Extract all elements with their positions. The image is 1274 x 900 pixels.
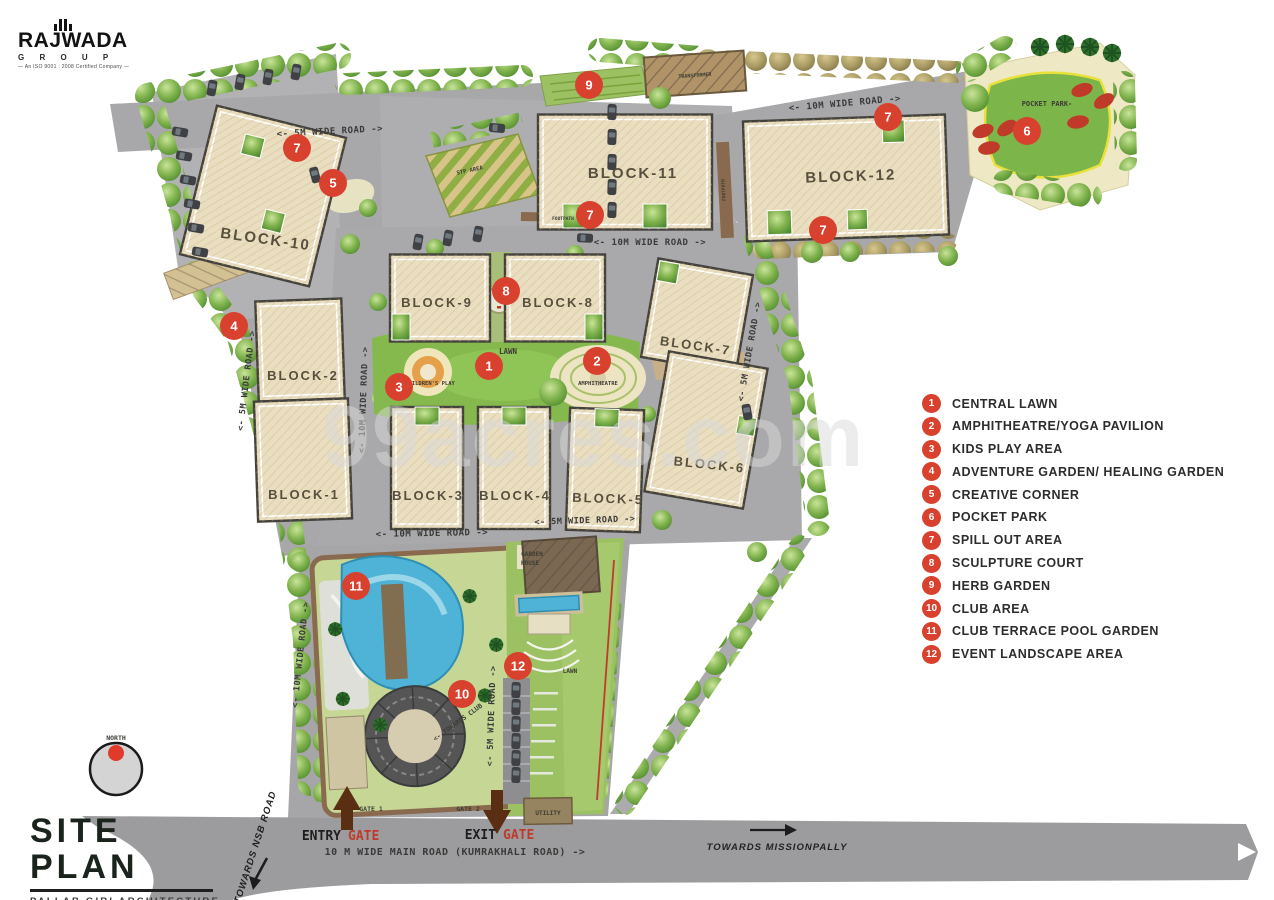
legend-marker-icon: 9 — [922, 576, 941, 595]
north-label: NORTH — [106, 734, 126, 742]
legend-item-label: CLUB TERRACE POOL GARDEN — [952, 624, 1159, 638]
svg-text:7: 7 — [293, 141, 300, 156]
footpath-label: FOOTPATH — [552, 216, 574, 222]
legend: 1CENTRAL LAWN 2AMPHITHEATRE/YOGA PAVILIO… — [922, 394, 1224, 668]
gate1-label: GATE 1 — [359, 805, 383, 813]
event-lawn-label: LAWN — [563, 668, 578, 675]
lawn-label: LAWN — [499, 347, 518, 356]
legend-item-label: EVENT LANDSCAPE AREA — [952, 647, 1123, 661]
marker-herb-garden: 9 — [575, 71, 603, 99]
page-title: SITE PLAN — [30, 814, 230, 885]
title-block: SITE PLAN PALLAB GIRI ARCHITECTURE — [30, 814, 230, 900]
legend-marker-icon: 11 — [922, 622, 941, 641]
svg-text:12: 12 — [511, 659, 525, 674]
svg-text:11: 11 — [349, 579, 363, 594]
marker-amphitheatre: 2 — [583, 347, 611, 375]
legend-item: 6POCKET PARK — [922, 508, 1224, 527]
svg-text:8: 8 — [502, 284, 509, 299]
legend-item: 4ADVENTURE GARDEN/ HEALING GARDEN — [922, 462, 1224, 481]
legend-item-label: AMPHITHEATRE/YOGA PAVILION — [952, 419, 1164, 433]
towards-missionpally-label: TOWARDS MISSIONPALLY — [707, 842, 849, 853]
legend-item: 7SPILL OUT AREA — [922, 531, 1224, 550]
title-underline — [30, 889, 213, 892]
marker-spill-out-1: 7 — [283, 134, 311, 162]
block-1 — [254, 398, 352, 521]
marker-creative-corner: 5 — [319, 169, 347, 197]
marker-pocket-park: 6 — [1013, 117, 1041, 145]
pocket-park-label: POCKET PARK- — [1022, 100, 1073, 108]
exit-gate-label: EXIT — [465, 828, 496, 843]
site-plan-page: BLOCK-10 BLOCK-11 BLOCK-12 BLOCK-9 BLOCK… — [0, 0, 1274, 900]
legend-item-label: HERB GARDEN — [952, 579, 1051, 593]
block-1-label: BLOCK-1 — [268, 487, 340, 502]
block-2-label: BLOCK-2 — [267, 368, 339, 383]
legend-item: 1CENTRAL LAWN — [922, 394, 1224, 413]
svg-text:5: 5 — [329, 176, 336, 191]
marker-club-area: 10 — [448, 680, 476, 708]
svg-text:6: 6 — [1023, 124, 1030, 139]
svg-text:1: 1 — [485, 359, 492, 374]
marker-spill-out-3: 7 — [874, 103, 902, 131]
main-road-label: 10 M WIDE MAIN ROAD (KUMRAKHALI ROAD) -> — [325, 847, 586, 858]
legend-marker-icon: 12 — [922, 645, 941, 664]
amphitheatre-label: AMPHITHEATRE — [578, 381, 618, 387]
legend-item: 10CLUB AREA — [922, 599, 1224, 618]
block-4 — [478, 407, 550, 529]
road-label-10m-mid: <- 10M WIDE ROAD -> — [594, 238, 707, 248]
block-3-label: BLOCK-3 — [392, 488, 464, 503]
svg-text:7: 7 — [884, 110, 891, 125]
utility-label: UTILITY — [535, 810, 561, 817]
pocket-park — [961, 35, 1135, 210]
architect-credit: PALLAB GIRI ARCHITECTURE — [30, 896, 230, 900]
brand-logo: RAJWADA G R O U P — An ISO 9001 : 2008 C… — [18, 18, 129, 70]
legend-item-label: ADVENTURE GARDEN/ HEALING GARDEN — [952, 465, 1224, 479]
svg-text:7: 7 — [586, 208, 593, 223]
svg-text:4: 4 — [230, 319, 238, 334]
entry-gate-word: GATE — [348, 829, 379, 844]
legend-item: 5CREATIVE CORNER — [922, 485, 1224, 504]
svg-text:9: 9 — [585, 78, 592, 93]
legend-marker-icon: 6 — [922, 508, 941, 527]
marker-spill-out-4: 7 — [809, 216, 837, 244]
legend-item: 9HERB GARDEN — [922, 576, 1224, 595]
block-5-label: BLOCK-5 — [572, 490, 644, 507]
legend-marker-icon: 4 — [922, 462, 941, 481]
legend-item: 8SCULPTURE COURT — [922, 554, 1224, 573]
svg-text:2: 2 — [593, 354, 600, 369]
legend-item-label: CREATIVE CORNER — [952, 488, 1079, 502]
entry-gate-label: ENTRY — [302, 829, 341, 844]
legend-marker-icon: 1 — [922, 394, 941, 413]
block-3 — [391, 407, 463, 529]
footpath-label-vertical: FOOTPATH — [720, 179, 727, 201]
block-12-label: BLOCK-12 — [805, 166, 897, 186]
legend-marker-icon: 8 — [922, 554, 941, 573]
block-2 — [255, 299, 344, 402]
block-9-label: BLOCK-9 — [401, 295, 473, 310]
block-11-label: BLOCK-11 — [588, 165, 678, 182]
logo-tagline: — An ISO 9001 : 2008 Certified Company — — [18, 64, 129, 70]
marker-central-lawn: 1 — [475, 352, 503, 380]
legend-item: 3KIDS PLAY AREA — [922, 440, 1224, 459]
legend-item: 11CLUB TERRACE POOL GARDEN — [922, 622, 1224, 641]
legend-marker-icon: 7 — [922, 531, 941, 550]
legend-item-label: CENTRAL LAWN — [952, 397, 1058, 411]
svg-text:3: 3 — [395, 380, 402, 395]
road-label-10m-bottom: <- 10M WIDE ROAD -> — [376, 528, 489, 540]
legend-item-label: SCULPTURE COURT — [952, 556, 1084, 570]
marker-sculpture-court: 8 — [492, 277, 520, 305]
gate2-label: GATE 2 — [456, 805, 480, 813]
garden-house-label-2: HOUSE — [521, 560, 539, 567]
legend-marker-icon: 10 — [922, 599, 941, 618]
legend-item: 12EVENT LANDSCAPE AREA — [922, 645, 1224, 664]
legend-marker-icon: 5 — [922, 485, 941, 504]
legend-item-label: POCKET PARK — [952, 510, 1048, 524]
legend-item-label: KIDS PLAY AREA — [952, 442, 1063, 456]
logo-group: G R O U P — [18, 53, 129, 62]
legend-item: 2AMPHITHEATRE/YOGA PAVILION — [922, 417, 1224, 436]
block-4-label: BLOCK-4 — [479, 488, 551, 503]
legend-marker-icon: 3 — [922, 440, 941, 459]
marker-adventure-garden: 4 — [220, 312, 248, 340]
legend-item-label: SPILL OUT AREA — [952, 533, 1062, 547]
marker-club-terrace-pool: 11 — [342, 572, 370, 600]
north-compass — [90, 743, 142, 795]
svg-text:10: 10 — [455, 687, 469, 702]
marker-kids-play: 3 — [385, 373, 413, 401]
logo-name: RAJWADA — [18, 30, 129, 51]
garden-house-label-1: GARDEN — [521, 551, 543, 558]
exit-gate-word: GATE — [503, 828, 534, 843]
event-landscape-area — [503, 536, 624, 824]
marker-event-landscape: 12 — [504, 652, 532, 680]
legend-item-label: CLUB AREA — [952, 602, 1030, 616]
legend-marker-icon: 2 — [922, 417, 941, 436]
marker-spill-out-2: 7 — [576, 201, 604, 229]
svg-text:7: 7 — [819, 223, 826, 238]
block-8-label: BLOCK-8 — [522, 295, 594, 310]
